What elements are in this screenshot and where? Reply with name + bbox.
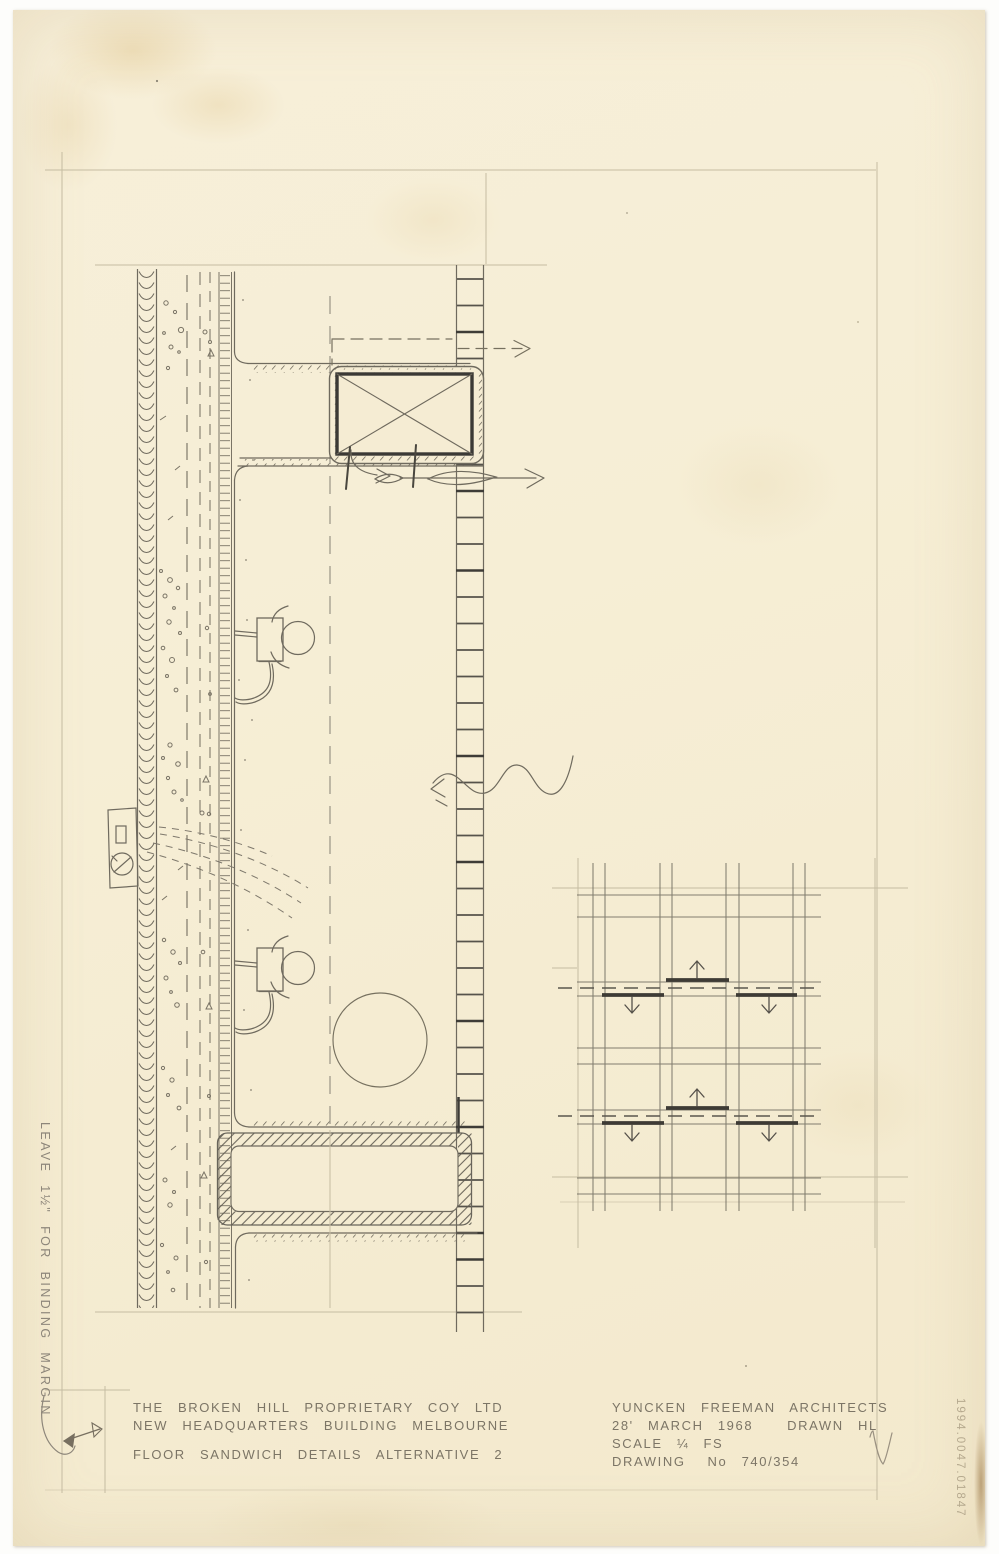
- conduit: [235, 662, 271, 700]
- scan-background: THE BROKEN HILL PROPRIETARY COY LTD NEW …: [0, 0, 999, 1554]
- corrugated-edge-strip: [137, 269, 157, 1308]
- fixture-housing: [257, 948, 283, 991]
- drawn-by: DRAWN HL: [787, 1419, 878, 1433]
- title-block-right: YUNCKEN FREEMAN ARCHITECTS 28' MARCH 196…: [612, 1401, 888, 1469]
- architectural-drawing: [0, 0, 999, 1554]
- client-line-1: THE BROKEN HILL PROPRIETARY COY LTD: [133, 1401, 509, 1415]
- lamp-globe: [282, 952, 315, 985]
- wall-meter-box: [108, 808, 138, 888]
- floor-duct-section: [218, 1133, 478, 1308]
- title-block-left: THE BROKEN HILL PROPRIETARY COY LTD NEW …: [133, 1401, 509, 1462]
- lamp-globe: [282, 622, 315, 655]
- grid-ribs: [577, 863, 821, 1211]
- drawing-date: 28' MARCH 1968: [612, 1419, 753, 1433]
- light-fixture-lower: [235, 936, 315, 1034]
- binding-margin-note: LEAVE 1½" FOR BINDING MARGIN: [38, 1122, 52, 1417]
- dashed-duct-outline: [332, 339, 452, 365]
- drawing-number: No 740/354: [708, 1455, 800, 1469]
- waffle-slab-plan: [552, 858, 908, 1248]
- meter-slot: [116, 826, 126, 843]
- mount-bracket: [235, 631, 257, 637]
- membrane-dash-lines: [187, 272, 210, 1308]
- accession-number: 1994.0047.01847: [954, 1398, 966, 1518]
- reflector-arcs: [271, 936, 289, 998]
- firm-name: YUNCKEN FREEMAN ARCHITECTS: [612, 1401, 888, 1415]
- mount-bracket: [235, 961, 257, 967]
- drawing-number-label: DRAWING: [612, 1455, 686, 1469]
- conduit: [235, 992, 271, 1030]
- wavy-flow-arrow: [431, 756, 573, 806]
- client-line-2: NEW HEADQUARTERS BUILDING MELBOURNE: [133, 1419, 509, 1433]
- drawing-title: FLOOR SANDWICH DETAILS ALTERNATIVE 2: [133, 1448, 509, 1462]
- column-circle: [333, 993, 427, 1087]
- reflector-arcs: [271, 606, 289, 668]
- fixture-housing: [257, 618, 283, 661]
- scale-note: SCALE ¼ FS: [612, 1437, 723, 1451]
